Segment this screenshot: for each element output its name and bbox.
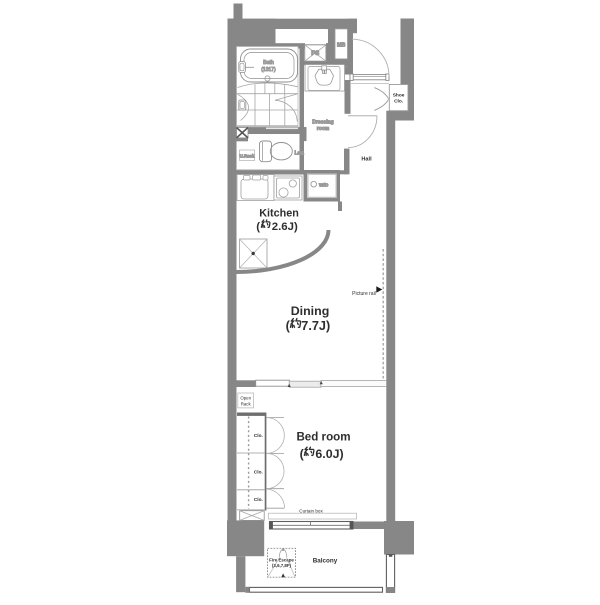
svg-text:Bed room: Bed room — [296, 430, 350, 443]
svg-text:Picture rail: Picture rail — [352, 291, 376, 297]
svg-text:7.7J): 7.7J) — [301, 319, 330, 333]
svg-text:Fire Escape: Fire Escape — [269, 558, 294, 563]
svg-text:U.Rack: U.Rack — [240, 154, 255, 159]
svg-text:Bath: Bath — [263, 60, 274, 66]
svg-text:Hall: Hall — [361, 157, 372, 163]
svg-text:Shoe: Shoe — [393, 93, 405, 99]
svg-text:(: ( — [256, 221, 260, 233]
svg-text:(3,6,7,8F): (3,6,7,8F) — [272, 563, 292, 568]
svg-text:room: room — [317, 126, 330, 132]
svg-text:Clo.: Clo. — [254, 470, 263, 476]
svg-text:Lav.: Lav. — [295, 151, 305, 157]
svg-text:Balcony: Balcony — [313, 558, 338, 565]
svg-text:Rack: Rack — [241, 402, 252, 407]
svg-text:Clo.: Clo. — [394, 99, 403, 105]
svg-text:MB: MB — [337, 43, 345, 49]
svg-text:Dressing: Dressing — [312, 120, 333, 126]
svg-text:Kitchen: Kitchen — [259, 208, 299, 220]
svg-text:Dining: Dining — [291, 304, 330, 318]
svg-text:Curtain box: Curtain box — [299, 508, 323, 513]
svg-text:2.6J): 2.6J) — [272, 221, 298, 233]
svg-text:PS: PS — [311, 51, 319, 57]
svg-text:Open: Open — [240, 395, 251, 400]
svg-text:6.0J): 6.0J) — [315, 447, 343, 461]
svg-text:(1317): (1317) — [261, 67, 276, 73]
svg-text:Clo.: Clo. — [254, 433, 263, 439]
svg-text:W/D: W/D — [319, 182, 329, 188]
svg-text:Clo.: Clo. — [254, 497, 263, 503]
